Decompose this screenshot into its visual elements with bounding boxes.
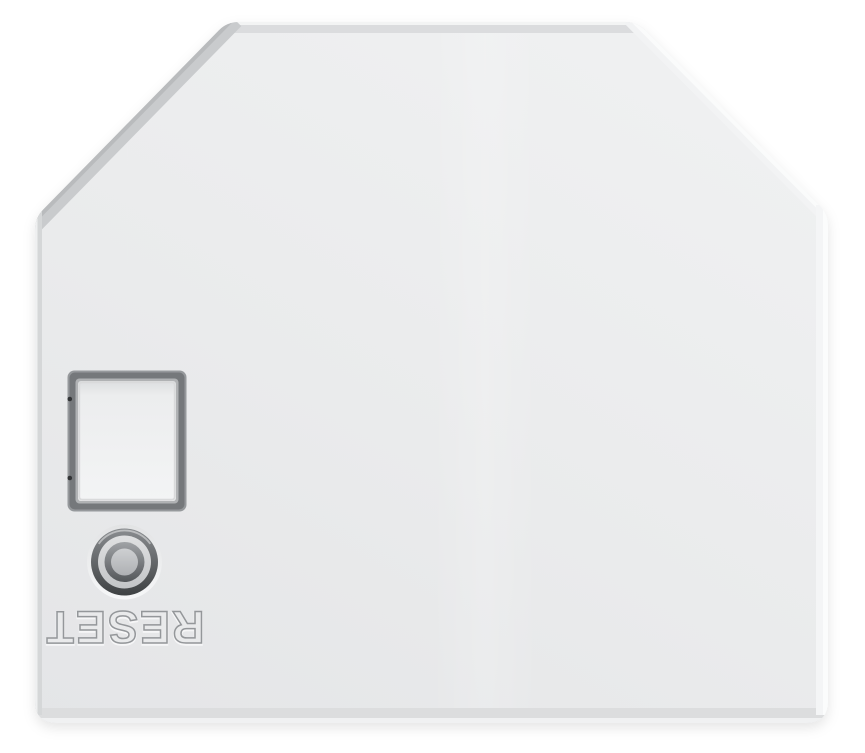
window-pin-dot-bottom <box>68 476 73 481</box>
reset-label: RESET <box>44 602 204 653</box>
reset-button <box>87 525 162 600</box>
reset-button-center <box>111 549 138 576</box>
product-photo: RESET RESET <box>0 0 865 753</box>
reset-label-group: RESET RESET <box>44 602 204 654</box>
device-body: RESET RESET <box>20 17 845 723</box>
window-panel <box>78 381 176 501</box>
device-image: RESET RESET <box>0 0 865 753</box>
window-pin-dot-top <box>68 397 73 402</box>
body-moulding-seam <box>430 22 540 723</box>
component-window <box>68 371 187 512</box>
